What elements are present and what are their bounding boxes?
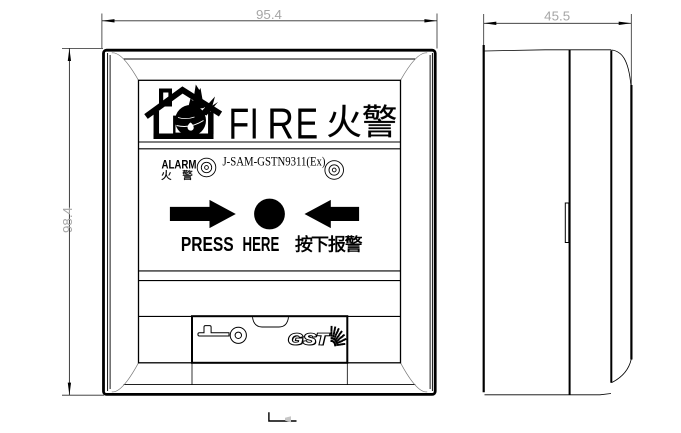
svg-text:PRESS: PRESS xyxy=(181,233,234,256)
svg-text:HERE: HERE xyxy=(243,233,280,256)
svg-text:E: E xyxy=(296,101,319,149)
svg-text:J-SAM-GSTN9311(Ex): J-SAM-GSTN9311(Ex) xyxy=(223,154,326,168)
svg-text:ALARM: ALARM xyxy=(162,157,197,171)
svg-text:98.4: 98.4 xyxy=(61,207,75,233)
svg-text:F: F xyxy=(229,101,250,149)
svg-text:R: R xyxy=(267,99,294,149)
svg-text:45.5: 45.5 xyxy=(544,9,570,23)
svg-text:GST: GST xyxy=(288,331,330,348)
svg-text:I: I xyxy=(250,101,259,149)
svg-text:95.4: 95.4 xyxy=(256,8,282,22)
